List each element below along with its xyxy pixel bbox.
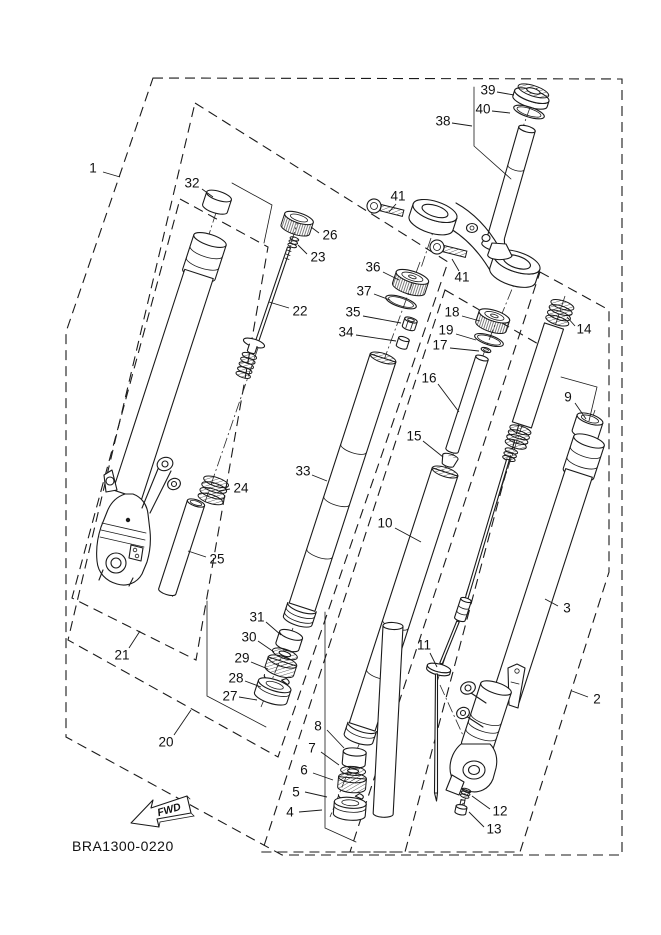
callout-26-2[interactable]: 26	[322, 228, 337, 243]
part-10-inner-tube-right	[343, 463, 461, 748]
callout-leader-23-3	[298, 245, 307, 254]
callout-19-25[interactable]: 19	[438, 323, 453, 338]
callout-23-3[interactable]: 23	[310, 250, 325, 265]
callout-leader-38-19	[452, 123, 472, 126]
callout-leader-13-41	[469, 812, 484, 827]
callout-33-14[interactable]: 33	[295, 464, 310, 479]
callout-leader-25-6	[188, 551, 206, 557]
callout-9-30[interactable]: 9	[564, 390, 572, 405]
callout-12-40[interactable]: 12	[492, 804, 507, 819]
callout-leader-15-28	[423, 441, 443, 457]
part-25-tube	[158, 497, 206, 597]
callout-4-39[interactable]: 4	[286, 805, 294, 820]
callout-10-31[interactable]: 10	[377, 516, 392, 531]
part-22-rebound-spring	[235, 351, 257, 380]
callout-41-22[interactable]: 41	[390, 189, 405, 204]
fork-parts-diagram: FWD BRA1300-0220 13226232224252120313029…	[0, 0, 661, 935]
callout-leader-39-20	[497, 92, 514, 95]
callout-13-41[interactable]: 13	[486, 822, 501, 837]
callout-leader-8-35	[327, 730, 344, 748]
callout-3-32[interactable]: 3	[563, 601, 571, 616]
callout-21-7[interactable]: 21	[114, 648, 129, 663]
part-17-ring	[481, 346, 492, 353]
part-axle-bracket-right	[446, 664, 525, 795]
callout-leader-33-14	[312, 475, 327, 481]
callout-leader-5-38	[305, 792, 327, 797]
callout-leader-4-39	[299, 810, 322, 812]
callout-leader-17-26	[450, 348, 479, 351]
callout-leader-26-2	[311, 227, 319, 233]
callout-35-17[interactable]: 35	[345, 305, 360, 320]
callout-32-1[interactable]: 32	[184, 176, 199, 191]
callout-29-11[interactable]: 29	[234, 651, 249, 666]
part-22-damper-rod	[235, 247, 291, 380]
part-16-damper-tube	[445, 354, 489, 455]
callout-39-20[interactable]: 39	[480, 83, 495, 98]
part-8-bushing	[342, 747, 367, 769]
callout-38-19[interactable]: 38	[435, 114, 450, 129]
callout-11-34[interactable]: 11	[417, 638, 431, 653]
callout-20-8[interactable]: 20	[158, 735, 173, 750]
callout-5-38[interactable]: 5	[292, 785, 300, 800]
callout-2-33[interactable]: 2	[593, 692, 601, 707]
callout-22-4[interactable]: 22	[292, 304, 307, 319]
callout-leader-7-36	[321, 752, 339, 765]
callout-leader-19-25	[456, 334, 476, 340]
callout-leader-31-9	[266, 622, 281, 635]
callout-leader-16-27	[438, 384, 459, 412]
callout-14-29[interactable]: 14	[576, 322, 592, 337]
callout-7-36[interactable]: 7	[308, 741, 316, 756]
callout-18-24[interactable]: 18	[444, 305, 459, 320]
callout-leader-27-13	[239, 697, 257, 700]
callout-31-9[interactable]: 31	[249, 610, 264, 625]
callout-1-0[interactable]: 1	[89, 161, 97, 176]
part-4-dust-seal	[333, 796, 367, 822]
callout-leader-37-16	[374, 294, 390, 300]
callout-27-13[interactable]: 27	[222, 689, 237, 704]
callout-16-27[interactable]: 16	[421, 371, 436, 386]
part-33-inner-tube	[282, 349, 399, 630]
part-34-spacer	[396, 335, 410, 350]
callout-25-6[interactable]: 25	[209, 552, 224, 567]
part-3-outer-tube-right	[492, 431, 605, 703]
diagram-code: BRA1300-0220	[72, 838, 174, 854]
callout-40-21[interactable]: 40	[475, 102, 490, 117]
callout-leader-21-7	[129, 631, 140, 648]
callout-28-12[interactable]: 28	[228, 671, 243, 686]
part-27-dust-seal	[253, 675, 293, 709]
part-36-cap-bolt	[391, 266, 431, 299]
part-seal-stack-left	[253, 626, 309, 709]
fwd-arrow: FWD	[131, 796, 194, 827]
callout-24-5[interactable]: 24	[233, 481, 249, 496]
callout-leader-6-37	[313, 773, 333, 780]
callout-36-15[interactable]: 36	[365, 260, 380, 275]
callout-leader-22-4	[269, 302, 289, 308]
callout-34-18[interactable]: 34	[338, 325, 354, 340]
callout-8-35[interactable]: 8	[314, 719, 322, 734]
callout-leader-40-21	[492, 111, 510, 113]
part-seal-stack-right	[333, 747, 371, 822]
callout-41-23[interactable]: 41	[454, 270, 469, 285]
callout-leader-1-0	[103, 172, 120, 177]
part-41-pinch-bolt-lower	[429, 239, 468, 262]
part-35-nut	[402, 316, 418, 332]
callout-leader-20-8	[174, 710, 191, 735]
callout-6-37[interactable]: 6	[300, 763, 308, 778]
callout-17-26[interactable]: 17	[432, 338, 447, 353]
callout-15-28[interactable]: 15	[406, 429, 421, 444]
callout-30-10[interactable]: 30	[241, 630, 256, 645]
part-14-fork-spring	[504, 297, 575, 451]
callout-leader-35-17	[363, 316, 401, 323]
part-6-oil-seal	[337, 772, 367, 794]
part-23-spring	[287, 236, 299, 249]
part-26-cap	[279, 209, 314, 239]
callout-leader-30-10	[258, 641, 274, 652]
callout-leader-12-40	[472, 796, 490, 809]
callout-leader-34-18	[356, 335, 396, 341]
callout-leader-2-33	[572, 691, 588, 697]
part-11-washer	[426, 661, 452, 677]
part-38-steering-stem	[406, 123, 543, 292]
part-13-bolt	[455, 799, 469, 816]
callout-37-16[interactable]: 37	[356, 284, 371, 299]
